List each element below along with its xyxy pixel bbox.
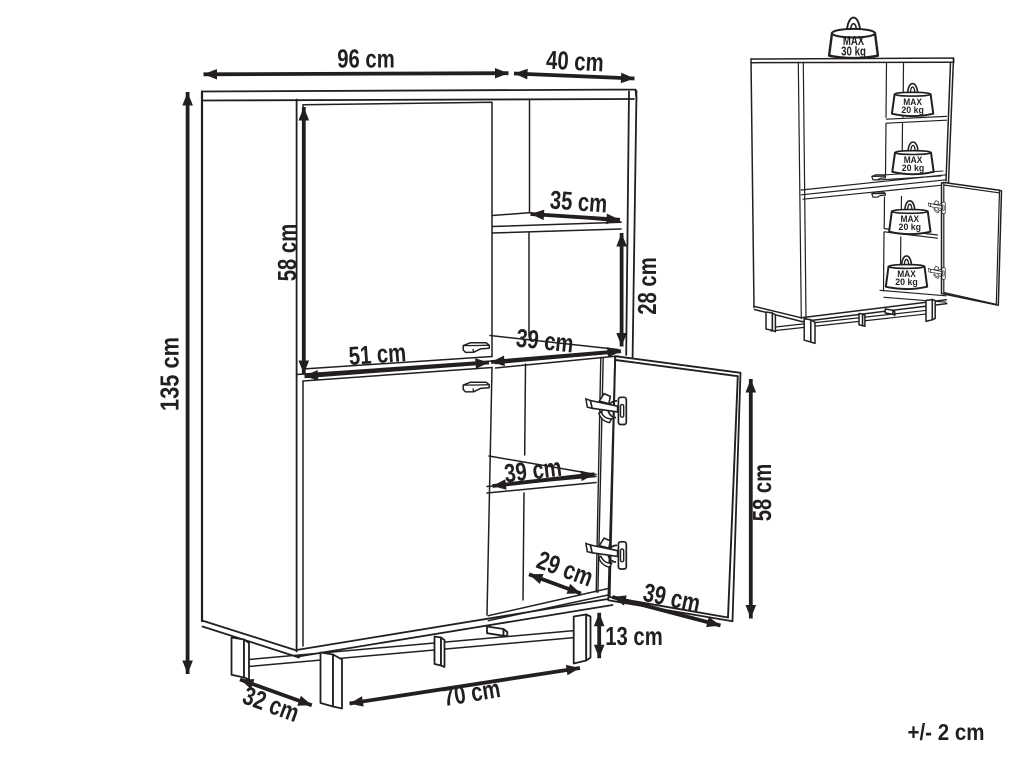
svg-text:135 cm: 135 cm	[155, 337, 185, 411]
svg-text:+/- 2 cm: +/- 2 cm	[908, 719, 985, 745]
svg-text:40 cm: 40 cm	[545, 45, 604, 78]
svg-text:51 cm: 51 cm	[348, 337, 407, 371]
svg-text:35 cm: 35 cm	[549, 185, 608, 219]
svg-text:58 cm: 58 cm	[747, 464, 777, 522]
svg-text:28 cm: 28 cm	[632, 257, 662, 315]
svg-text:58 cm: 58 cm	[272, 224, 302, 282]
svg-text:39 cm: 39 cm	[515, 323, 575, 359]
svg-text:13 cm: 13 cm	[605, 621, 663, 651]
svg-text:96 cm: 96 cm	[337, 44, 395, 74]
svg-text:30 kg: 30 kg	[841, 44, 866, 58]
svg-text:20 kg: 20 kg	[895, 277, 918, 287]
svg-text:20 kg: 20 kg	[899, 222, 922, 232]
svg-text:20 kg: 20 kg	[901, 105, 924, 115]
svg-text:20 kg: 20 kg	[902, 163, 925, 173]
